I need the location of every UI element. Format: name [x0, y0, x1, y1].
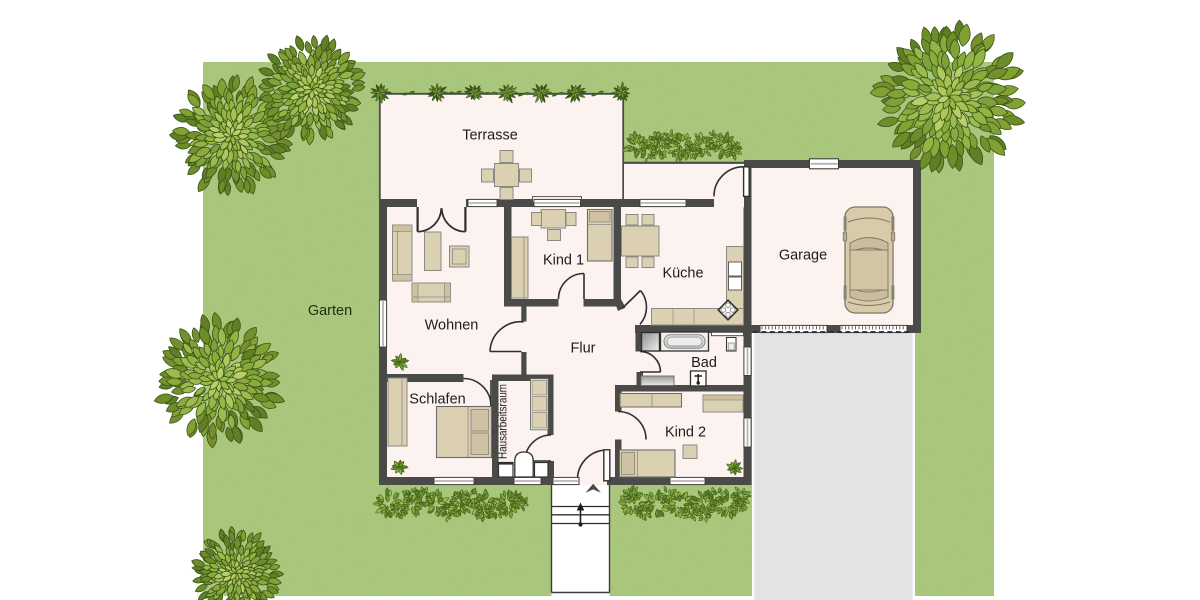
- svg-text:Kind 2: Kind 2: [665, 425, 706, 441]
- svg-text:Terrasse: Terrasse: [462, 128, 518, 144]
- svg-text:Flur: Flur: [571, 341, 596, 357]
- svg-text:Bad: Bad: [691, 355, 717, 371]
- svg-text:Schlafen: Schlafen: [409, 392, 465, 408]
- svg-text:Garage: Garage: [779, 248, 827, 264]
- svg-text:Garten: Garten: [308, 303, 352, 319]
- svg-text:Wohnen: Wohnen: [425, 318, 479, 334]
- svg-text:Küche: Küche: [662, 266, 703, 282]
- svg-text:Kind 1: Kind 1: [543, 253, 584, 269]
- svg-text:Hausarbeitsraum: Hausarbeitsraum: [496, 384, 510, 459]
